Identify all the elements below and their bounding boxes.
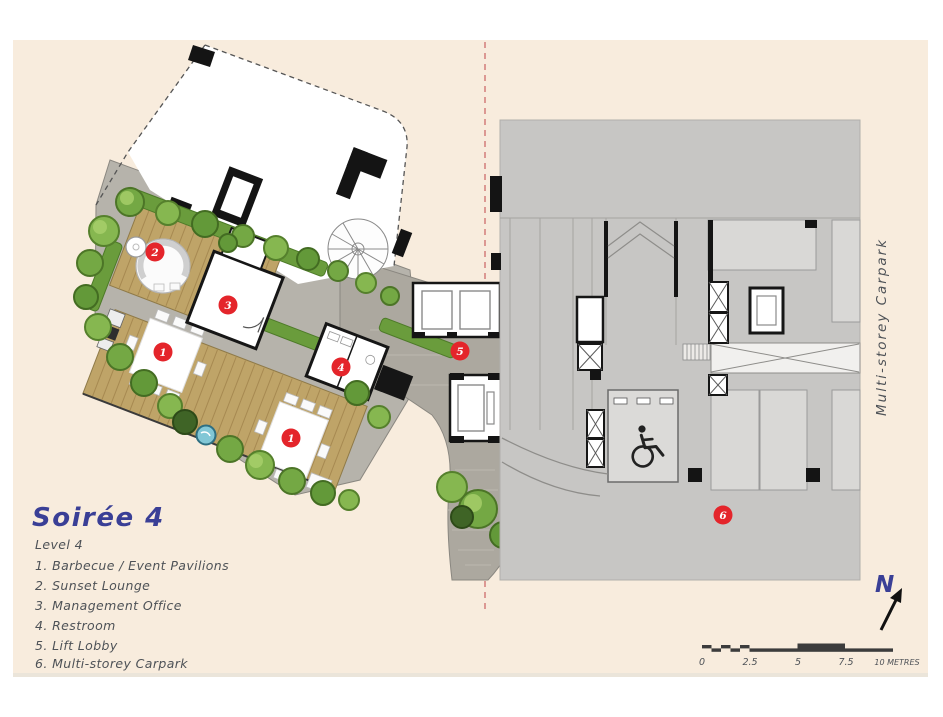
scale-tick: 5 [795,657,801,668]
scale-tick: 7.5 [838,657,853,668]
accessible-parking-bay [608,390,678,482]
marker-pavilion-1: 1 [154,343,173,362]
legend-item: 2. Sunset Lounge [35,578,150,593]
marker-sunset-lounge: 2 [146,243,165,262]
svg-text:1: 1 [287,433,294,445]
page-title: Soirée 4 [32,503,165,533]
marker-pavilion-2: 1 [282,429,301,448]
marker-lift-lobby: 5 [451,342,470,361]
plan-page: 2 3 1 4 1 5 6 Soirée 4 Level 4 1. Bar [0,0,943,717]
scale-tick: 0 [699,657,705,668]
svg-text:1: 1 [159,347,166,359]
legend-item: 6. Multi-storey Carpark [35,656,188,671]
legend-item: 1. Barbecue / Event Pavilions [35,558,229,573]
svg-text:3: 3 [224,300,231,312]
svg-text:6: 6 [719,510,727,522]
site-plan-drawing: 2 3 1 4 1 5 6 Soirée 4 Level 4 1. Bar [0,0,943,717]
legend-level: Level 4 [35,537,83,552]
parking-bay [832,220,860,322]
legend-item: 5. Lift Lobby [35,638,118,653]
stairs [683,344,710,360]
svg-text:2: 2 [150,247,158,259]
parking-bay [708,220,816,270]
scale-tick: 2.5 [742,657,757,668]
paper-shadow [13,673,928,677]
marker-management-office: 3 [219,296,238,315]
parking-bay [832,390,860,490]
carpark-side-label: Multi-storey Carpark [874,238,890,416]
legend-item: 4. Restroom [35,618,116,633]
north-label: N [875,572,894,598]
parking-bay [711,390,759,490]
marker-restroom: 4 [332,358,351,377]
svg-text:5: 5 [456,346,463,358]
pond [197,426,216,445]
parking-bay [760,390,807,490]
legend-item: 3. Management Office [35,598,182,613]
carpark-area [490,120,860,580]
marker-carpark: 6 [714,506,733,525]
ramp-crossing [711,343,860,373]
svg-text:4: 4 [337,362,344,374]
scale-end-label: 10 METRES [874,658,919,667]
